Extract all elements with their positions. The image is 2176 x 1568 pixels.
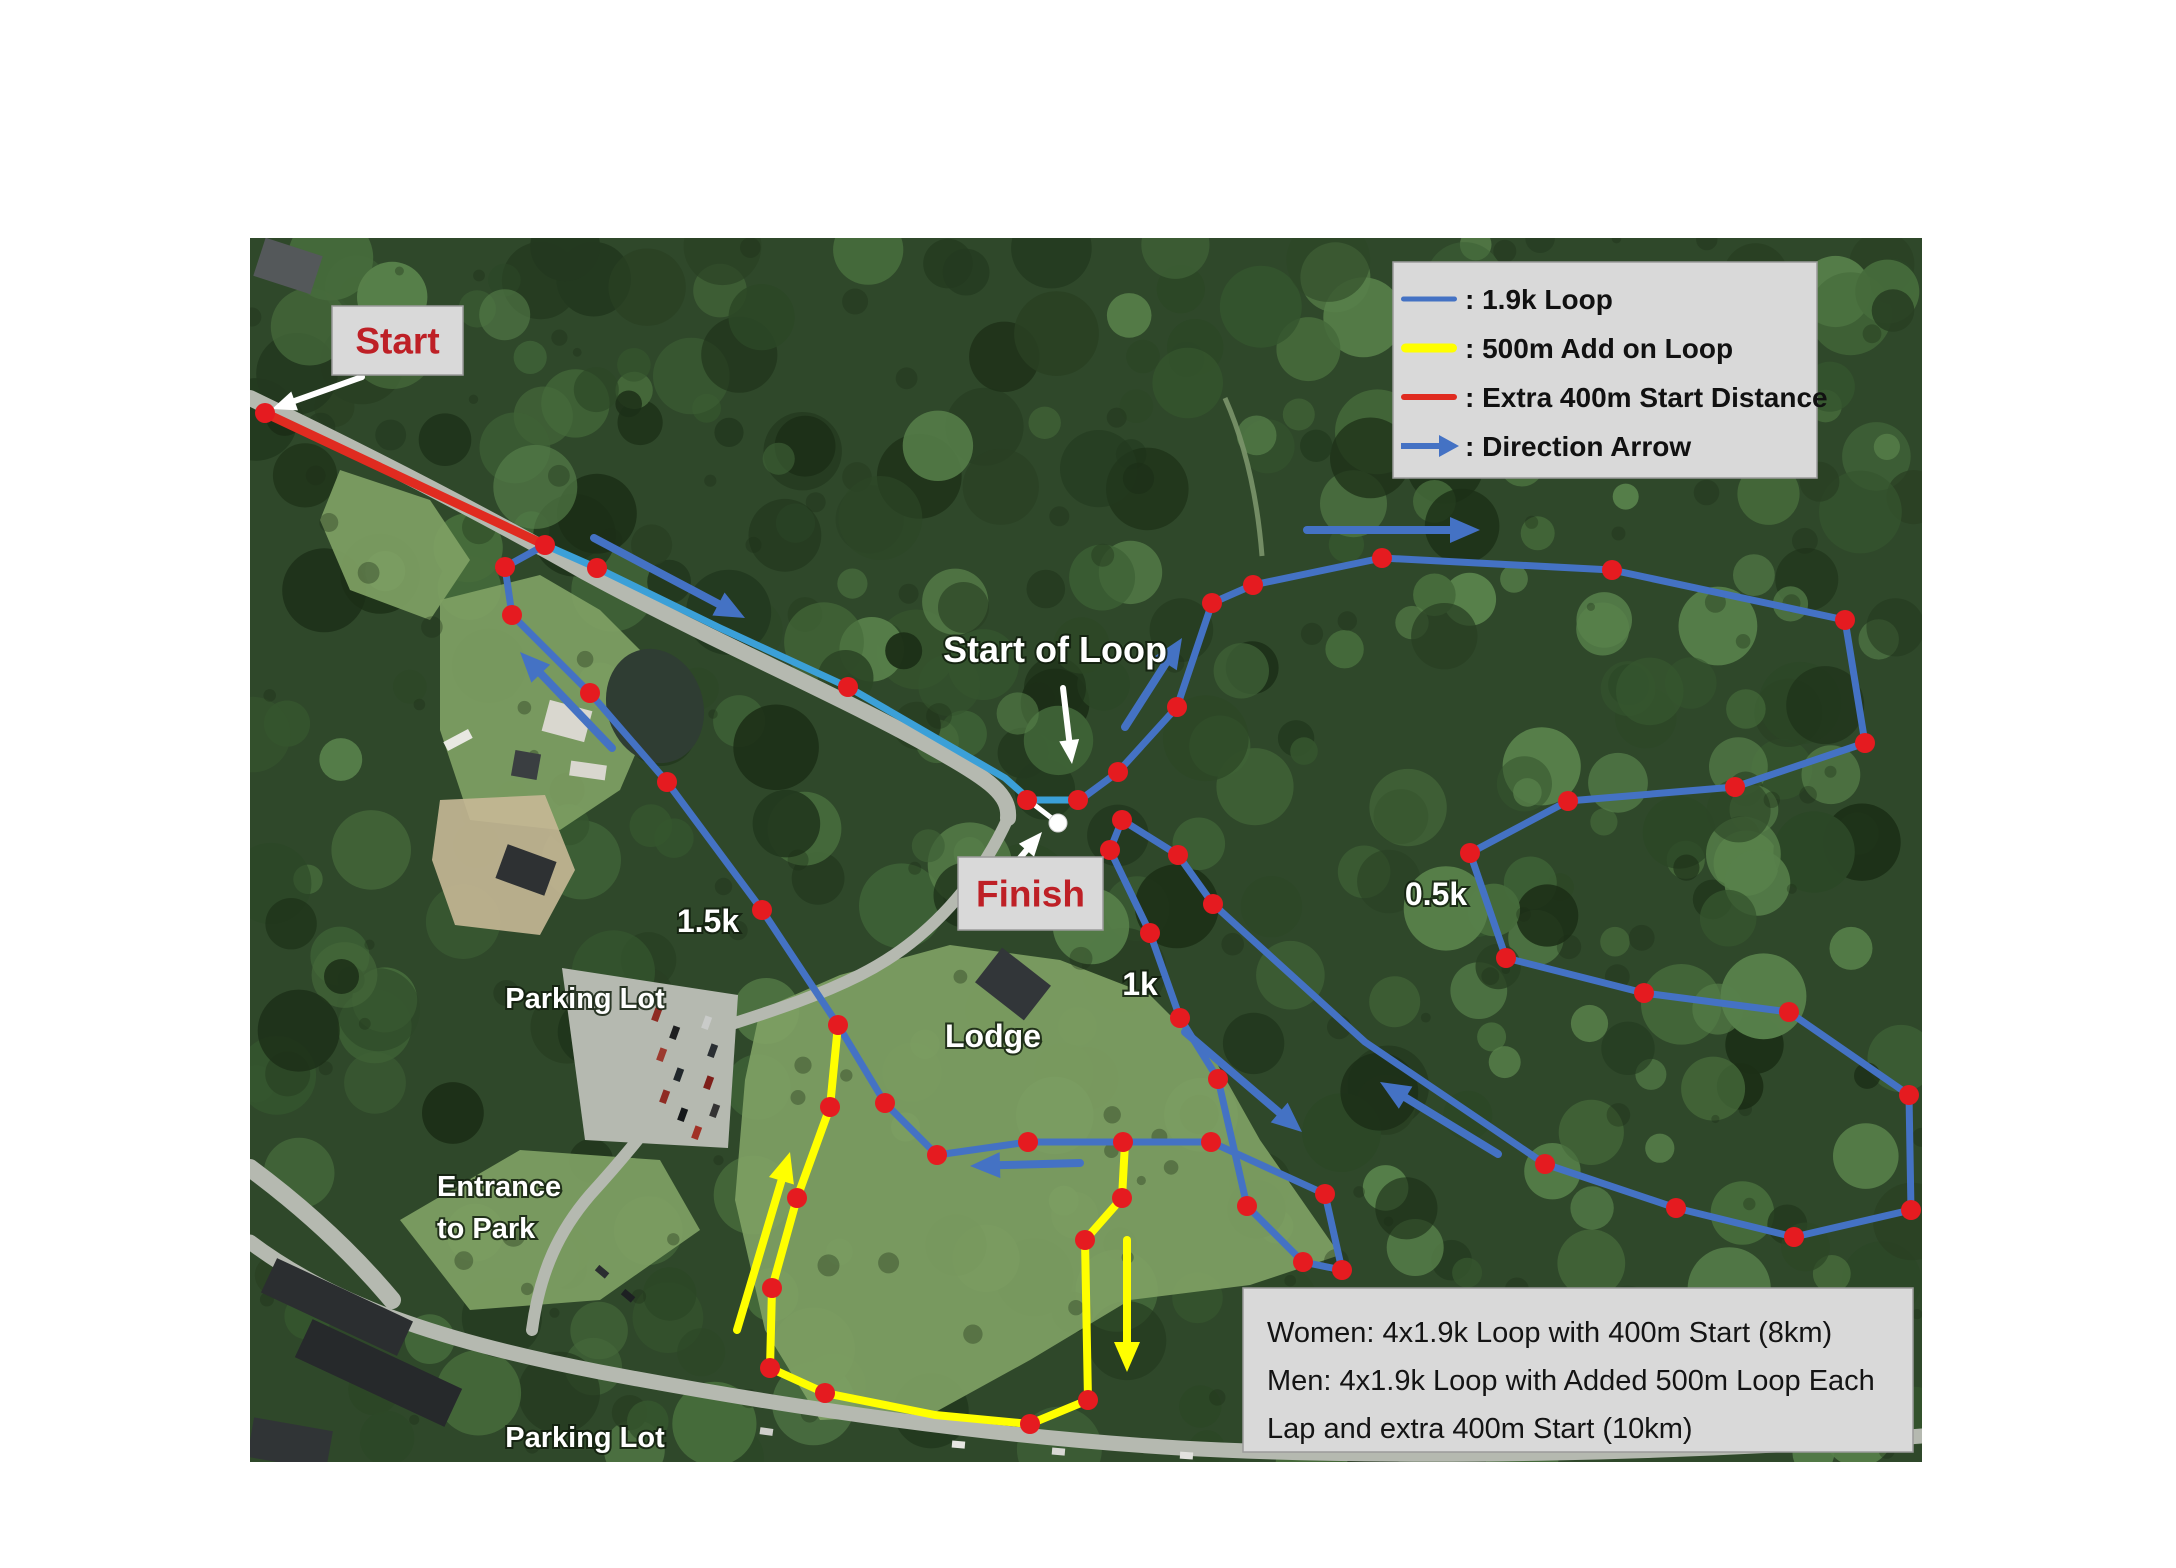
course-waypoint-dot <box>1496 948 1516 968</box>
svg-text:: Extra 400m Start Distance: : Extra 400m Start Distance <box>1465 382 1828 413</box>
course-waypoint-dot <box>1899 1085 1919 1105</box>
label-1-5k: 1.5k <box>677 903 739 939</box>
course-waypoint-dot <box>1112 810 1132 830</box>
label-0-5k: 0.5k <box>1405 876 1467 912</box>
course-waypoint-dot <box>1208 1069 1228 1089</box>
course-waypoint-dot <box>1020 1414 1040 1434</box>
map-svg: Start of Loop1.5k1k0.5kLodgeParking LotE… <box>0 0 2176 1568</box>
course-waypoint-dot <box>580 683 600 703</box>
svg-text:: Direction Arrow: : Direction Arrow <box>1465 431 1691 462</box>
info-line: Lap and extra 400m Start (10km) <box>1267 1413 1693 1445</box>
course-waypoint-dot <box>1068 790 1088 810</box>
course-waypoint-dot <box>1140 923 1160 943</box>
course-waypoint-dot <box>820 1097 840 1117</box>
course-waypoint-dot <box>815 1383 835 1403</box>
svg-text:: 500m Add on Loop: : 500m Add on Loop <box>1465 333 1733 364</box>
label-parking-bottom: Parking Lot <box>505 1422 665 1454</box>
course-waypoint-dot <box>1170 1008 1190 1028</box>
building-shed <box>511 750 541 780</box>
course-waypoint-dot <box>927 1145 947 1165</box>
label-entrance-2: to Park <box>437 1213 536 1245</box>
course-waypoint-dot <box>1108 762 1128 782</box>
svg-text:Finish: Finish <box>976 874 1085 915</box>
race-format-info-box: Women: 4x1.9k Loop with 400m Start (8km)… <box>1243 1288 1913 1452</box>
course-waypoint-dot <box>875 1093 895 1113</box>
course-waypoint-dot <box>657 772 677 792</box>
label-start-of-loop: Start of Loop <box>943 629 1167 670</box>
course-waypoint-dot <box>587 558 607 578</box>
label-entrance-1: Entrance <box>437 1171 561 1203</box>
course-waypoint-dot <box>495 557 515 577</box>
course-waypoint-dot <box>1293 1252 1313 1272</box>
course-map-page: Start of Loop1.5k1k0.5kLodgeParking LotE… <box>0 0 2176 1568</box>
parked-car <box>952 1440 966 1448</box>
course-waypoint-dot <box>535 535 555 555</box>
svg-text:: 1.9k Loop: : 1.9k Loop <box>1465 284 1613 315</box>
label-1k: 1k <box>1122 966 1158 1002</box>
course-waypoint-dot <box>1201 1132 1221 1152</box>
course-waypoint-dot <box>1332 1260 1352 1280</box>
course-waypoint-dot <box>838 677 858 697</box>
finish-dot <box>1049 814 1067 832</box>
legend: : 1.9k Loop: 500m Add on Loop: Extra 400… <box>1393 262 1828 478</box>
course-waypoint-dot <box>1113 1132 1133 1152</box>
course-waypoint-dot <box>787 1188 807 1208</box>
course-waypoint-dot <box>828 1015 848 1035</box>
course-waypoint-dot <box>1855 733 1875 753</box>
course-waypoint-dot <box>1779 1002 1799 1022</box>
course-waypoint-dot <box>1167 697 1187 717</box>
course-waypoint-dot <box>502 605 522 625</box>
course-waypoint-dot <box>1243 575 1263 595</box>
svg-text:Start: Start <box>355 321 439 362</box>
course-waypoint-dot <box>1558 791 1578 811</box>
aerial-course-map: Start of Loop1.5k1k0.5kLodgeParking LotE… <box>0 0 2176 1568</box>
course-waypoint-dot <box>1315 1184 1335 1204</box>
finish-label-box: Finish <box>958 857 1103 930</box>
info-line: Women: 4x1.9k Loop with 400m Start (8km) <box>1267 1317 1832 1349</box>
parked-car <box>1180 1452 1193 1460</box>
label-lodge: Lodge <box>945 1018 1041 1054</box>
course-waypoint-dot <box>1237 1196 1257 1216</box>
legend-400m-start: : Extra 400m Start Distance <box>1401 382 1828 413</box>
course-waypoint-dot <box>752 900 772 920</box>
parked-car <box>1052 1447 1066 1455</box>
course-waypoint-dot <box>1372 548 1392 568</box>
course-waypoint-dot <box>255 403 275 423</box>
course-waypoint-dot <box>1460 843 1480 863</box>
course-waypoint-dot <box>1168 845 1188 865</box>
course-waypoint-dot <box>1784 1227 1804 1247</box>
course-waypoint-dot <box>760 1358 780 1378</box>
course-waypoint-dot <box>1535 1154 1555 1174</box>
course-waypoint-dot <box>1018 1132 1038 1152</box>
course-waypoint-dot <box>1725 777 1745 797</box>
label-parking-top: Parking Lot <box>505 983 665 1015</box>
info-line: Men: 4x1.9k Loop with Added 500m Loop Ea… <box>1267 1365 1875 1397</box>
course-waypoint-dot <box>1901 1200 1921 1220</box>
course-waypoint-dot <box>1666 1198 1686 1218</box>
course-waypoint-dot <box>1602 560 1622 580</box>
course-waypoint-dot <box>762 1278 782 1298</box>
course-waypoint-dot <box>1835 610 1855 630</box>
course-waypoint-dot <box>1017 790 1037 810</box>
course-waypoint-dot <box>1075 1230 1095 1250</box>
course-waypoint-dot <box>1202 593 1222 613</box>
course-waypoint-dot <box>1112 1188 1132 1208</box>
course-waypoint-dot <box>1634 983 1654 1003</box>
start-label-box: Start <box>332 306 463 375</box>
course-waypoint-dot <box>1203 894 1223 914</box>
course-waypoint-dot <box>1078 1390 1098 1410</box>
